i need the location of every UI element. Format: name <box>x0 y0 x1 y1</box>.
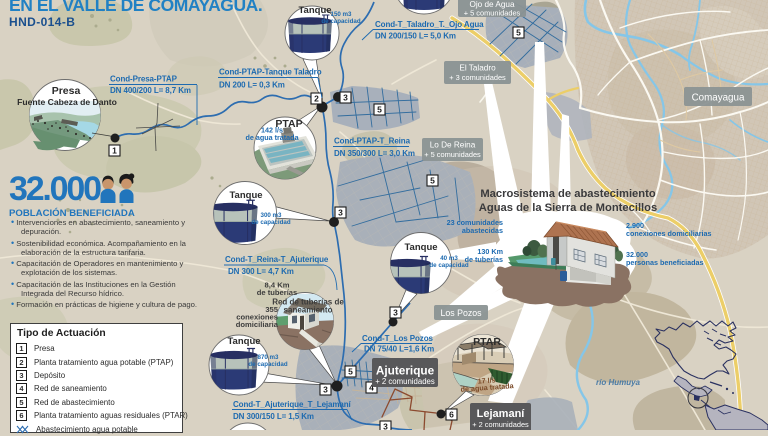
svg-text:3: 3 <box>343 93 348 103</box>
svg-text:40 m3: 40 m3 <box>440 255 458 262</box>
svg-text:abastecidas: abastecidas <box>462 226 503 235</box>
svg-text:DN 300 L= 4,7 Km: DN 300 L= 4,7 Km <box>228 267 294 276</box>
svg-text:+ 2 comunidades: + 2 comunidades <box>472 420 529 429</box>
svg-text:3: 3 <box>323 385 328 395</box>
svg-text:150 m3: 150 m3 <box>331 11 353 18</box>
svg-text:de capacidad: de capacidad <box>251 219 290 226</box>
svg-text:El Taladro: El Taladro <box>459 64 496 73</box>
svg-text:Fuente Cabeza de Danto: Fuente Cabeza de Danto <box>17 97 117 107</box>
svg-text:1: 1 <box>112 146 117 156</box>
svg-text:5: 5 <box>377 105 382 115</box>
svg-text:de capacidad: de capacidad <box>321 18 360 25</box>
svg-text:Tanque: Tanque <box>227 336 260 347</box>
svg-text:+ 2 comunidades: + 2 comunidades <box>375 377 435 386</box>
svg-text:Aguas de la Sierra de Montecil: Aguas de la Sierra de Montecillos <box>479 202 657 214</box>
svg-text:DN 400/200 L= 8,7 Km: DN 400/200 L= 8,7 Km <box>110 86 191 95</box>
svg-text:Cond-T_Ajuterique_T_Lejamaní: Cond-T_Ajuterique_T_Lejamaní <box>233 400 352 409</box>
svg-text:PTAP: PTAP <box>275 118 302 130</box>
svg-text:Ajuterique: Ajuterique <box>376 364 435 378</box>
svg-text:Cond-Presa-PTAP: Cond-Presa-PTAP <box>110 75 178 84</box>
svg-text:Tanque: Tanque <box>298 5 331 16</box>
svg-text:saneamiento: saneamiento <box>284 306 333 315</box>
svg-text:DN 300/150 L= 1,5 Km: DN 300/150 L= 1,5 Km <box>233 412 314 421</box>
svg-text:río Humuya: río Humuya <box>596 378 641 387</box>
svg-text:de tuberías: de tuberías <box>465 255 503 264</box>
svg-text:de capacidad: de capacidad <box>248 361 287 368</box>
svg-text:DN 75/40 L=1,6 Km: DN 75/40 L=1,6 Km <box>364 345 434 354</box>
svg-text:3: 3 <box>383 422 388 430</box>
svg-text:Cond-T_Taladro_T._Ojo Agua: Cond-T_Taladro_T._Ojo Agua <box>375 20 484 29</box>
svg-text:+ 5 comunidades: + 5 comunidades <box>424 150 481 159</box>
svg-text:Presa: Presa <box>52 85 81 97</box>
svg-text:de agua tratada: de agua tratada <box>245 133 299 142</box>
svg-text:domiciliaria: domiciliaria <box>236 320 279 329</box>
svg-text:DN 200/150 L= 5,0 Km: DN 200/150 L= 5,0 Km <box>375 32 456 41</box>
svg-text:5: 5 <box>516 28 521 38</box>
svg-text:Tanque: Tanque <box>229 190 262 201</box>
svg-text:Cond-PTAP-T_Reina: Cond-PTAP-T_Reina <box>334 137 411 146</box>
svg-text:870 m3: 870 m3 <box>258 354 280 361</box>
svg-text:Lo De Reina: Lo De Reina <box>430 141 476 150</box>
svg-text:Tanque: Tanque <box>404 242 437 253</box>
svg-text:Cond-PTAP-Tanque Taladro: Cond-PTAP-Tanque Taladro <box>219 68 322 77</box>
svg-text:5: 5 <box>348 367 353 377</box>
svg-text:Comayagua: Comayagua <box>692 93 745 104</box>
svg-text:DN 200 L= 0,3 Km: DN 200 L= 0,3 Km <box>219 81 285 90</box>
svg-text:+ 5 comunidades: + 5 comunidades <box>464 9 521 18</box>
svg-text:personas beneficiadas: personas beneficiadas <box>626 258 704 267</box>
svg-text:de agua tratada: de agua tratada <box>460 381 515 394</box>
svg-text:3: 3 <box>393 308 398 318</box>
svg-text:3: 3 <box>338 208 343 218</box>
svg-text:conexiones domiciliarias: conexiones domiciliarias <box>626 229 712 238</box>
svg-text:2: 2 <box>314 94 319 104</box>
svg-text:de capacidad: de capacidad <box>429 262 468 269</box>
svg-text:6: 6 <box>449 410 454 420</box>
svg-text:PTAR: PTAR <box>473 336 501 348</box>
svg-text:+ 3 comunidades: + 3 comunidades <box>449 73 506 82</box>
svg-text:Los Pozos: Los Pozos <box>440 308 482 318</box>
svg-text:DN 350/300 L= 3,0 Km: DN 350/300 L= 3,0 Km <box>334 149 415 158</box>
svg-text:Cond-T_Los Pozos: Cond-T_Los Pozos <box>362 334 433 343</box>
svg-text:Macrosistema de abastecimiento: Macrosistema de abastecimiento <box>480 188 656 200</box>
svg-text:300 m3: 300 m3 <box>261 212 283 219</box>
svg-text:Lejamaní: Lejamaní <box>477 408 526 420</box>
svg-text:de tuberías: de tuberías <box>257 288 298 297</box>
svg-text:5: 5 <box>430 176 435 186</box>
svg-text:Cond-T_Reina-T_Ajuterique: Cond-T_Reina-T_Ajuterique <box>225 255 329 264</box>
